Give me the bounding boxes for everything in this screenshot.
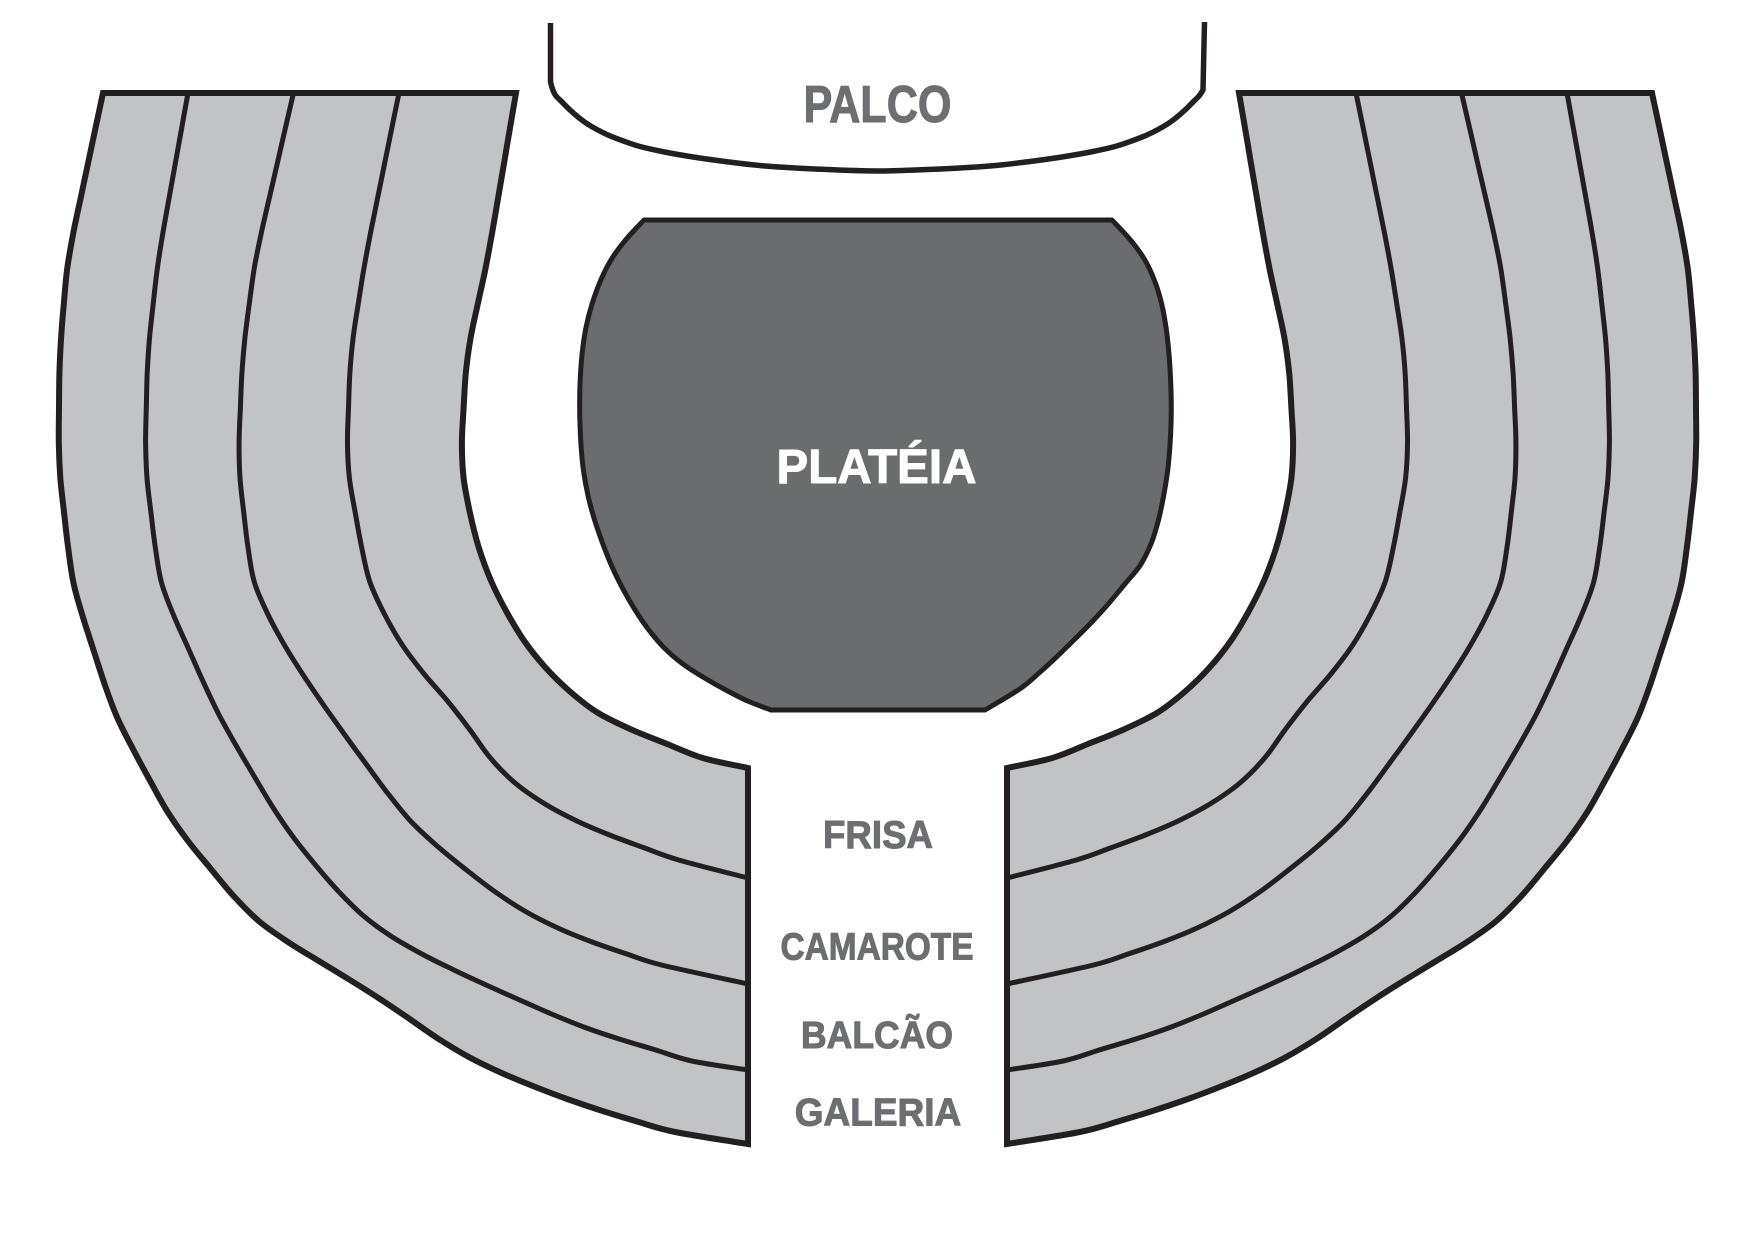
svg-text:BALCÃO: BALCÃO bbox=[801, 1013, 953, 1057]
svg-text:PLATÉIA: PLATÉIA bbox=[777, 440, 977, 494]
svg-text:CAMAROTE: CAMAROTE bbox=[781, 927, 974, 969]
svg-text:GALERIA: GALERIA bbox=[795, 1092, 962, 1135]
svg-text:PALCO: PALCO bbox=[804, 75, 952, 133]
svg-text:FRISA: FRISA bbox=[823, 814, 933, 857]
